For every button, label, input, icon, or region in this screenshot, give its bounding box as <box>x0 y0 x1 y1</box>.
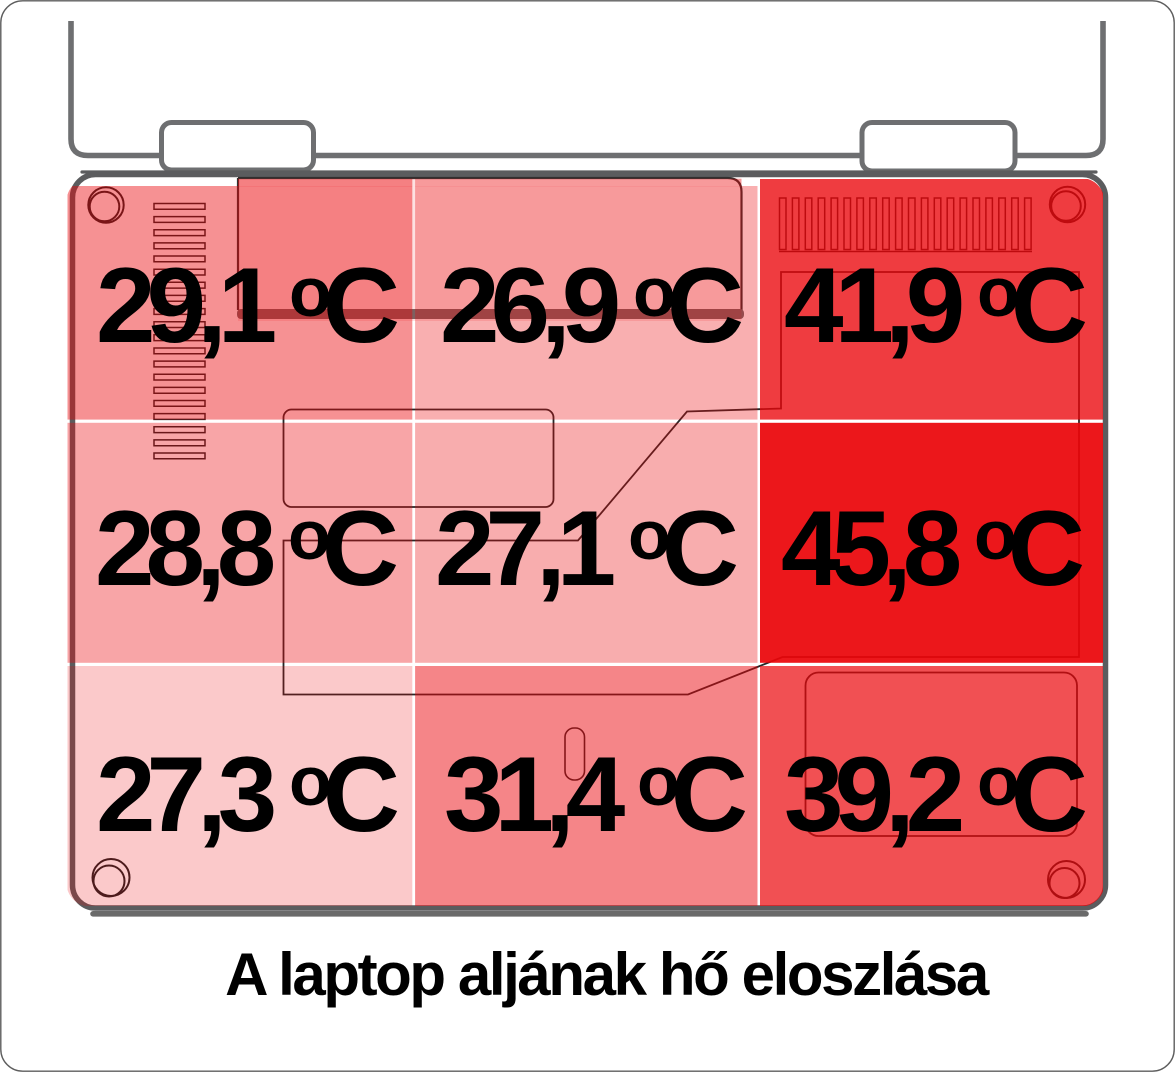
svg-text:28,8 oC: 28,8 oC <box>95 488 397 608</box>
svg-text:39,2 oC: 39,2 oC <box>784 734 1086 854</box>
svg-text:27,3 oC: 27,3 oC <box>96 734 398 854</box>
svg-text:41,9 oC: 41,9 oC <box>784 245 1086 365</box>
svg-text:26,9 oC: 26,9 oC <box>440 245 742 365</box>
svg-text:A laptop aljának hő eloszlása: A laptop aljának hő eloszlása <box>225 941 990 1008</box>
svg-text:45,8 oC: 45,8 oC <box>781 488 1083 608</box>
svg-text:31,4 oC: 31,4 oC <box>444 734 746 854</box>
svg-text:29,1 oC: 29,1 oC <box>96 245 398 365</box>
svg-text:27,1 oC: 27,1 oC <box>435 488 737 608</box>
